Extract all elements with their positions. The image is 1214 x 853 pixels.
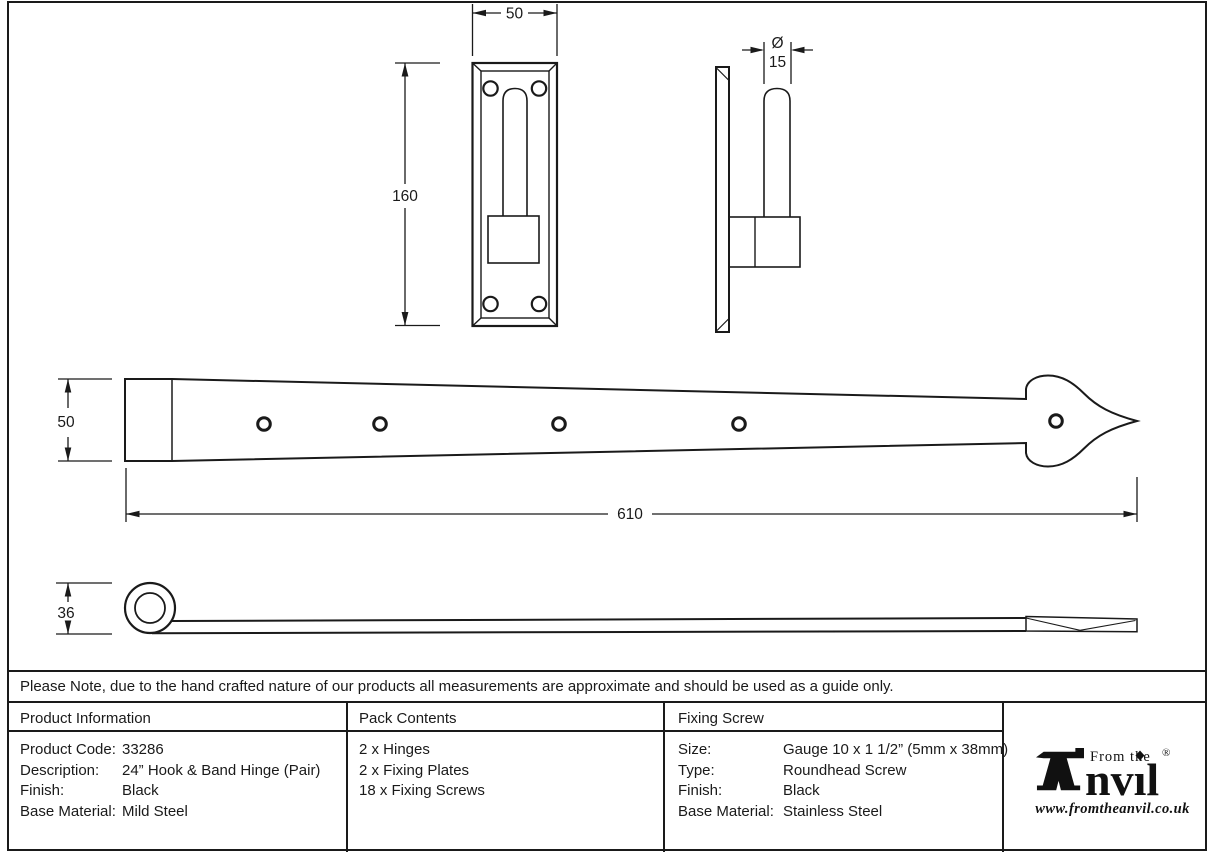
- band-dimension-arrows: [65, 379, 1137, 517]
- hook-pin: [503, 89, 527, 217]
- table-row: Product Code: 33286: [20, 740, 320, 761]
- pack-contents-title: Pack Contents: [359, 710, 457, 728]
- hook-pin-side: [764, 89, 790, 218]
- band-hole: [374, 418, 387, 431]
- pin-diameter-symbol: Ø: [771, 35, 783, 52]
- plate-width-dim: 50: [506, 6, 524, 23]
- table-row: Base Material: Stainless Steel: [678, 802, 1008, 823]
- row-value: Gauge 10 x 1 1/2” (5mm x 38mm): [783, 740, 1008, 761]
- table-divider: [663, 703, 665, 852]
- band-height-dim: 50: [57, 414, 75, 431]
- row-label: Product Code:: [20, 740, 122, 761]
- hook-side-view: [716, 67, 800, 332]
- logo-website: www.fromtheanvil.co.uk: [1035, 801, 1190, 817]
- pack-contents-body: 2 x Hinges 2 x Fixing Plates 18 x Fixing…: [359, 740, 485, 802]
- logo-brand-text: nvıl: [1085, 754, 1159, 805]
- band-eye-outer: [125, 583, 175, 633]
- anvil-icon: [1036, 748, 1084, 790]
- row-label: Type:: [678, 761, 783, 782]
- product-information-title: Product Information: [20, 710, 151, 728]
- from-the-anvil-logo: From the nvıl ® www.fromtheanvil.co.uk: [1028, 740, 1198, 818]
- screw-hole: [532, 297, 546, 311]
- screw-hole: [532, 81, 546, 95]
- table-row: Base Material: Mild Steel: [20, 802, 320, 823]
- row-label: Finish:: [678, 781, 783, 802]
- band-hole: [258, 418, 271, 431]
- band-hole: [733, 418, 746, 431]
- row-value: Stainless Steel: [783, 802, 882, 823]
- pin-bracket: [729, 217, 800, 267]
- row-value: Roundhead Screw: [783, 761, 906, 782]
- table-row: Size: Gauge 10 x 1 1/2” (5mm x 38mm): [678, 740, 1008, 761]
- measurement-note-text: Please Note, due to the hand crafted nat…: [9, 678, 894, 695]
- band-hole: [1050, 415, 1063, 428]
- band-top-view: [125, 376, 1137, 467]
- pin-block: [488, 216, 539, 263]
- measurement-note: Please Note, due to the hand crafted nat…: [7, 670, 1207, 703]
- band-eye-inner: [135, 593, 165, 623]
- band-side-height-dim: 36: [57, 605, 74, 622]
- table-row: Description: 24” Hook & Band Hinge (Pair…: [20, 761, 320, 782]
- row-value: Black: [783, 781, 820, 802]
- row-label: Base Material:: [678, 802, 783, 823]
- fixing-screw-title: Fixing Screw: [678, 710, 764, 728]
- row-value: 33286: [122, 740, 164, 761]
- fixing-plate-front-view: [473, 63, 558, 326]
- table-row: Finish: Black: [20, 781, 320, 802]
- row-value: Black: [122, 781, 159, 802]
- list-item: 2 x Hinges: [359, 740, 485, 761]
- screw-hole: [483, 297, 497, 311]
- plate-dimension-lines: [395, 4, 557, 326]
- row-value: Mild Steel: [122, 802, 188, 823]
- registered-mark: ®: [1162, 747, 1170, 759]
- table-divider: [346, 703, 348, 852]
- row-label: Base Material:: [20, 802, 122, 823]
- row-label: Finish:: [20, 781, 122, 802]
- table-header-divider: [8, 730, 1004, 732]
- band-dimension-lines: [58, 379, 1137, 522]
- row-label: Size:: [678, 740, 783, 761]
- pin-diameter-dim: 15: [769, 54, 786, 71]
- product-datasheet: { "drawing": { "plate_front": { "width":…: [0, 0, 1214, 853]
- fixing-screw-body: Size: Gauge 10 x 1 1/2” (5mm x 38mm) Typ…: [678, 740, 1008, 822]
- row-value: 24” Hook & Band Hinge (Pair): [122, 761, 320, 782]
- list-item: 2 x Fixing Plates: [359, 761, 485, 782]
- plate-height-dim: 160: [392, 188, 418, 205]
- table-row: Finish: Black: [678, 781, 1008, 802]
- technical-drawing: 50 160 Ø 15 50 610: [0, 0, 1214, 668]
- product-information-body: Product Code: 33286 Description: 24” Hoo…: [20, 740, 320, 822]
- plate-dimension-arrows: [402, 10, 557, 326]
- row-label: Description:: [20, 761, 122, 782]
- table-row: Type: Roundhead Screw: [678, 761, 1008, 782]
- band-outline: [125, 376, 1137, 467]
- list-item: 18 x Fixing Screws: [359, 781, 485, 802]
- band-length-dim: 610: [617, 506, 643, 523]
- band-hole: [553, 418, 566, 431]
- band-side-view: [125, 583, 1137, 633]
- screw-hole: [483, 81, 497, 95]
